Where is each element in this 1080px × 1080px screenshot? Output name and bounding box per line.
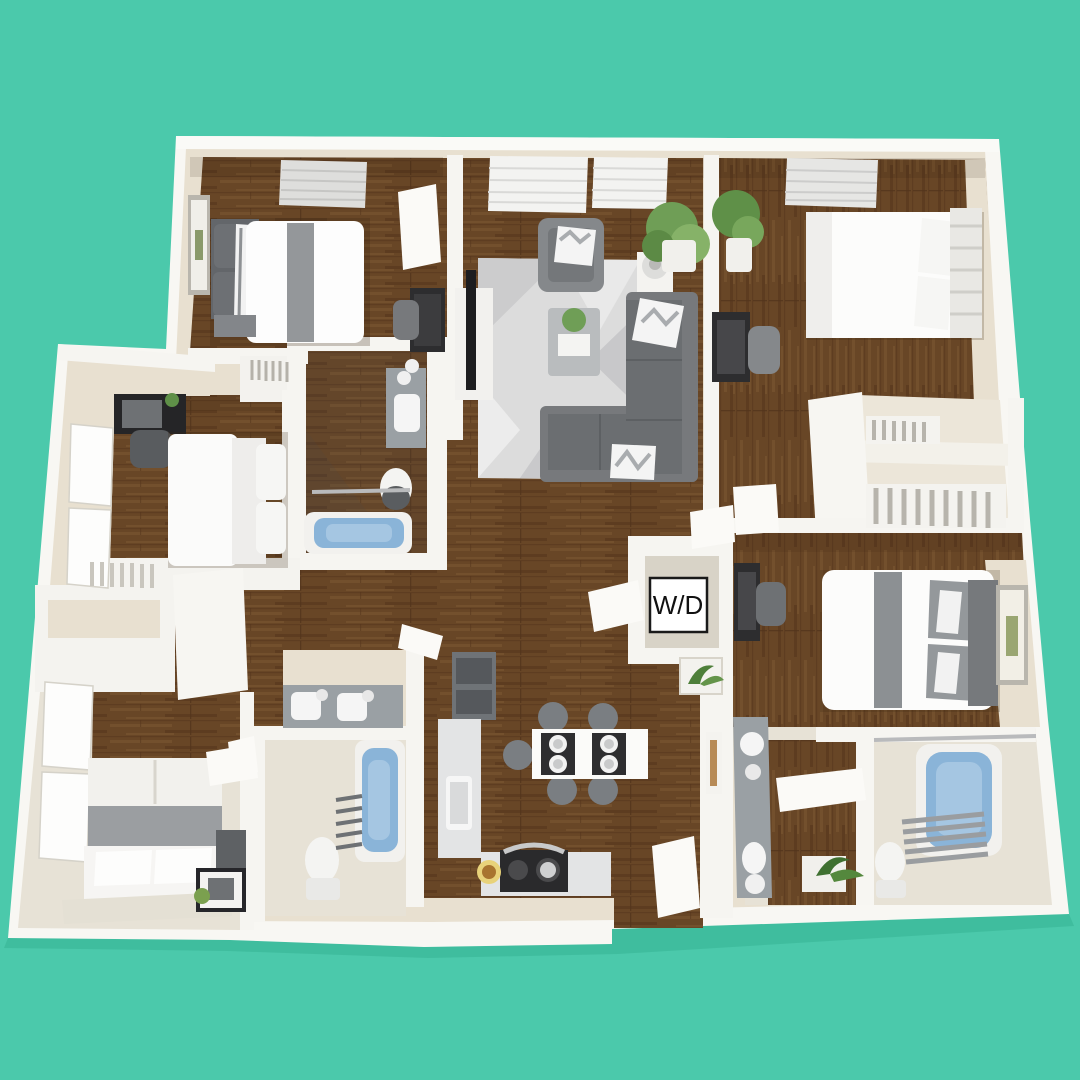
svg-text:W/D: W/D [653,590,704,620]
